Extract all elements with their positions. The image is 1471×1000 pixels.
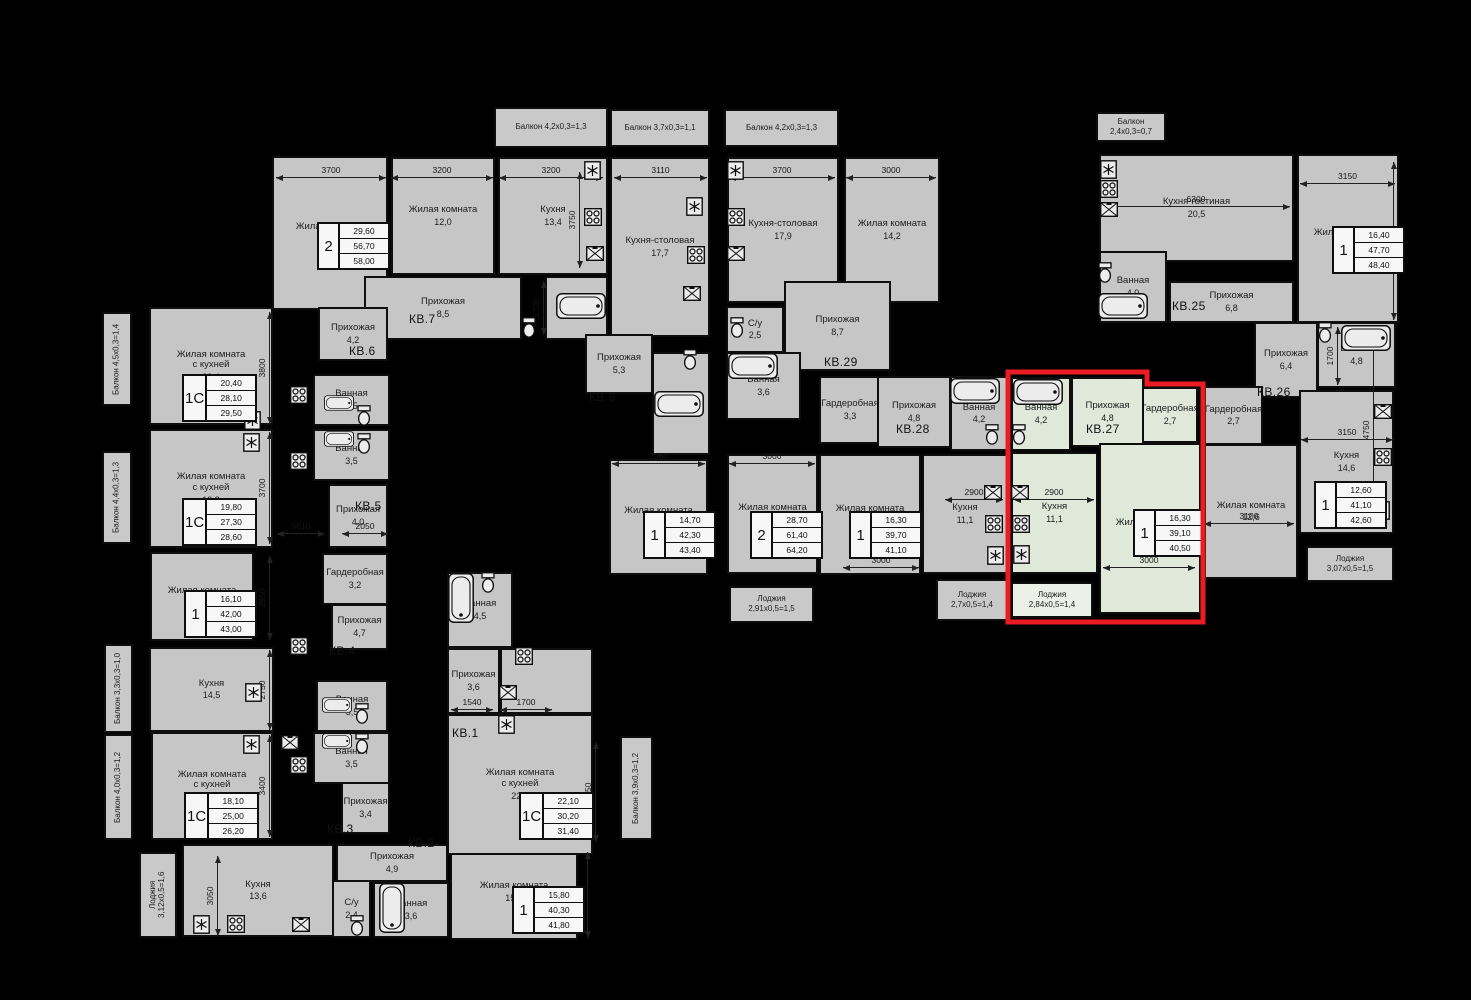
area-values: 28,7061,4064,20 (773, 513, 821, 557)
room-area: 17,7 (651, 248, 669, 258)
area-value: 28,60 (207, 529, 255, 544)
room-name: Лоджия (958, 591, 986, 600)
room-name: Прихожая (1209, 291, 1253, 302)
room-name: Гардеробная (1205, 405, 1262, 416)
balcony[interactable]: Балкон 4,4х0,3=1,3 (102, 451, 132, 544)
room-area: 4,2 (973, 414, 986, 424)
area-value: 48,40 (1355, 257, 1403, 272)
washer-icon (498, 715, 515, 734)
apartment-type-label: 1 (186, 592, 207, 636)
room-name: Кухня-столовая (626, 236, 695, 247)
loggia[interactable]: Лоджия2,7х0,5=1,4 (936, 579, 1008, 621)
room-area: 11,1 (957, 515, 974, 525)
room-area: 14,2 (883, 231, 901, 241)
floor-plan: Жилая комната17,6Жилая комната12,0Кухня1… (0, 0, 1471, 1000)
dimension-value: 2050 (354, 521, 377, 531)
apartment-label: КВ.25 (1172, 299, 1206, 313)
area-table: 116,3039,1040,50 (1133, 509, 1206, 557)
room-name: С/у (748, 319, 762, 330)
stove-icon (1374, 448, 1392, 466)
area-value: 28,70 (773, 513, 821, 527)
room-name: Прихожая (892, 401, 936, 412)
apartment-label: КВ.28 (896, 422, 930, 436)
loggia[interactable]: Лоджия2,84х0,5=1,4 (1011, 582, 1093, 618)
room-area: 3,6 (405, 911, 418, 921)
washer-icon (584, 161, 601, 180)
stove-icon (1100, 180, 1118, 198)
room-name: Прихожая (343, 797, 387, 808)
stove-icon (290, 386, 308, 404)
room-area: 6,8 (1225, 303, 1238, 313)
toilet-icon (985, 424, 999, 445)
toilet-icon (481, 572, 495, 593)
room-name: Ванная (963, 403, 996, 414)
room-area: 11,1 (1046, 514, 1063, 524)
room-area: 8,7 (831, 327, 844, 337)
area-value: 41,10 (872, 542, 920, 557)
room-area: 4,2 (1035, 415, 1048, 425)
dimension-label: 2950 (258, 556, 270, 640)
area-table: 1С18,1025,0026,20 (184, 792, 259, 840)
dimension-value: 1700 (531, 299, 541, 318)
room-area: 6,4 (1280, 361, 1293, 371)
dimension-value: 3110 (649, 165, 671, 175)
room[interactable]: Гардеробная2,7 (1142, 387, 1198, 443)
apartment-type-label: 1 (1334, 228, 1355, 272)
room-name: Жилая комната (858, 219, 927, 230)
toilet-icon (1012, 424, 1026, 445)
room-name: Прихожая (451, 670, 495, 681)
area-table: 1С22,1030,2031,40 (519, 792, 594, 840)
toilet-icon (730, 317, 744, 338)
dimension-value: 2950 (257, 589, 267, 608)
room-area: 3,2 (349, 580, 362, 590)
room-area: 2,84х0,5=1,4 (1029, 601, 1075, 610)
apartment-type-label: 1С (521, 794, 544, 838)
room-name: Прихожая (337, 616, 381, 627)
dimension-label: 3800 (258, 312, 270, 424)
dimension-value: 2900 (1043, 487, 1066, 497)
dimension-value: 2900 (963, 487, 986, 497)
area-value: 56,70 (340, 238, 388, 253)
room-name: Кухня (540, 205, 565, 216)
area-value: 20,40 (207, 376, 255, 390)
room[interactable]: Прихожая4,8 (1071, 377, 1144, 447)
dimension-label: 3000 (729, 452, 815, 464)
stove-icon (227, 915, 245, 933)
apartment-type-label: 1С (184, 376, 207, 420)
sink-icon (281, 735, 299, 750)
bathtub-icon (556, 293, 606, 319)
toilet-icon (355, 733, 369, 754)
apartment-label: КВ.29 (824, 355, 858, 369)
dimension-value: 3700 (771, 165, 794, 175)
dimension-label: 2050 (342, 522, 388, 534)
washer-icon (193, 915, 210, 934)
stove-icon (515, 647, 533, 665)
dimension-label: 3000 (1103, 556, 1195, 568)
room-area: 4,8 (1350, 356, 1363, 366)
area-table: 114,7042,3043,40 (643, 511, 716, 559)
stove-icon (687, 246, 705, 264)
dimension-value: 3800 (257, 359, 267, 378)
dimension-label: 3700 (276, 166, 386, 178)
toilet-icon (1098, 262, 1112, 283)
apartment-label: КВ.7 (409, 312, 436, 326)
room-name: Кухня (1334, 451, 1359, 462)
room-name: Прихожая (331, 323, 375, 334)
washer-icon (1013, 545, 1030, 564)
area-value: 29,60 (340, 224, 388, 238)
room-name: Кухня-столовая (749, 219, 818, 230)
sink-icon (292, 917, 310, 932)
area-value: 64,20 (773, 542, 821, 557)
room-area: 12,0 (434, 217, 452, 227)
apartment-type-label: 2 (752, 513, 773, 557)
area-value: 27,30 (207, 514, 255, 529)
room-name: Прихожая (1085, 401, 1129, 412)
room-name-line2: с кухней (193, 483, 230, 494)
bathtub-icon (1013, 379, 1063, 405)
bathtub-icon (654, 391, 704, 417)
area-table: 116,4047,7048,40 (1332, 226, 1405, 274)
dimension-label: 3150 (1300, 172, 1395, 184)
room-area: 14,6 (1338, 463, 1356, 473)
area-value: 31,40 (544, 823, 592, 838)
room-name: Кухня (952, 503, 977, 514)
area-value: 30,20 (544, 808, 592, 823)
room[interactable]: Кухня-гостиная20,5 (1099, 154, 1294, 262)
area-value: 40,30 (535, 902, 583, 917)
bathtub-icon (324, 431, 354, 447)
dimension-value: 6300 (1185, 194, 1208, 204)
area-values: 20,4028,1029,50 (207, 376, 255, 420)
washer-icon (245, 683, 262, 702)
room-area: 2,91х0,5=1,5 (748, 605, 794, 614)
area-table: 115,8040,3041,80 (512, 886, 585, 934)
room-name: Балкон 3,9х0,3=1,2 (632, 752, 641, 823)
room-name-line2: с кухней (502, 779, 539, 790)
dimension-value: 1700 (1325, 347, 1335, 366)
dimension-label: 2960 (612, 452, 705, 464)
room-area: 2,7 (1164, 416, 1177, 426)
balcony[interactable]: Балкон 4,0х0,3=1,2 (104, 734, 133, 840)
room-name: Балкон 4,2х0,3=1,3 (515, 123, 586, 132)
dimension-value: 1540 (461, 697, 484, 707)
bathtub-icon (379, 883, 405, 933)
room-area: 20,5 (1188, 209, 1206, 219)
room-name: Балкон 4,2х0,3=1,3 (746, 124, 817, 133)
dimension-value: 3150 (1336, 171, 1359, 181)
apartment-type-label: 1 (851, 513, 872, 557)
apartment-label: КВ.8 (589, 390, 616, 404)
area-values: 29,6056,7058,00 (340, 224, 388, 268)
area-value: 14,70 (666, 513, 714, 527)
room-name: Гардеробная (1142, 404, 1198, 415)
area-value: 16,30 (1156, 511, 1204, 525)
room-area: 17,9 (774, 231, 792, 241)
area-values: 16,4047,7048,40 (1355, 228, 1403, 272)
sink-icon (727, 246, 745, 261)
apartment-type-label: 1С (184, 500, 207, 544)
sink-icon (1011, 485, 1029, 500)
area-value: 43,40 (666, 542, 714, 557)
apartment-type-label: 1 (645, 513, 666, 557)
room-area: 2,7х0,5=1,4 (951, 601, 993, 610)
area-values: 16,1042,0043,00 (207, 592, 255, 636)
washer-icon (727, 161, 744, 180)
balcony[interactable]: Балкон 4,2х0,3=1,3 (724, 109, 839, 147)
apartment-type-label: 1 (1135, 511, 1156, 555)
dimension-label: 1540 (451, 698, 493, 710)
room-area: 3,6 (467, 682, 480, 692)
loggia[interactable]: Лоджия2,91х0,5=1,5 (729, 586, 814, 623)
room-area: 3,4 (359, 809, 372, 819)
room-area: 3,5 (345, 456, 358, 466)
area-value: 39,70 (872, 527, 920, 542)
dimension-label: 3150 (1301, 428, 1393, 440)
dimension-value: 3000 (880, 165, 903, 175)
area-values: 19,8027,3028,60 (207, 500, 255, 544)
room-name: Прихожая (597, 353, 641, 364)
room[interactable]: Прихожая4,8 (877, 376, 951, 448)
room[interactable]: Гардеробная3,2 (322, 553, 388, 605)
sink-icon (1374, 404, 1392, 419)
apartment-label: КВ.6 (349, 344, 376, 358)
dimension-value: 3700 (257, 479, 267, 498)
room[interactable]: Гардеробная2,7 (1204, 386, 1263, 445)
bathtub-icon (950, 378, 1000, 404)
room-name: Лоджия (757, 595, 785, 604)
room-name: Балкон 3,3х0,3=1,0 (114, 653, 123, 724)
room-area: 2,4х0,3=0,7 (1110, 128, 1152, 137)
room-name: Прихожая (370, 852, 414, 863)
washer-icon (243, 735, 260, 754)
balcony[interactable]: Балкон 4,5х0,3=1,4 (102, 312, 132, 406)
area-value: 42,60 (1337, 512, 1385, 527)
apartment-label: КВ.26 (1257, 385, 1291, 399)
room-area: 14,5 (203, 690, 221, 700)
toilet-icon (350, 915, 364, 936)
apartment-type-label: 1 (1316, 483, 1337, 527)
bathtub-icon (1341, 325, 1391, 351)
area-values: 22,1030,2031,40 (544, 794, 592, 838)
loggia[interactable]: Лоджия3,07х0,5=1,5 (1306, 546, 1394, 582)
area-value: 61,40 (773, 527, 821, 542)
area-values: 16,3039,7041,10 (872, 513, 920, 557)
dimension-value: 5610 (290, 521, 313, 531)
room-name: Балкон 3,7х0,3=1,1 (624, 124, 695, 133)
room-name: Балкон 4,5х0,3=1,4 (113, 323, 122, 394)
room-name: Балкон 4,0х0,3=1,2 (114, 751, 123, 822)
dimension-value: 3700 (320, 165, 343, 175)
area-value: 41,80 (535, 917, 583, 932)
apartment-label: КВ.4 (329, 644, 356, 658)
dimension-value: 1700 (515, 697, 538, 707)
sink-icon (586, 246, 604, 261)
room-name: Прихожая (1264, 349, 1308, 360)
area-value: 42,00 (207, 606, 255, 621)
area-value: 43,00 (207, 621, 255, 636)
stove-icon (1012, 515, 1030, 533)
room-area: 3,3 (844, 411, 857, 421)
area-table: 116,1042,0043,00 (184, 590, 257, 638)
room-area: 3,12х0,5=1,6 (158, 871, 167, 917)
bathtub-icon (1098, 293, 1148, 319)
dimension-value: 3200 (540, 165, 563, 175)
room-name: Балкон (1118, 118, 1145, 127)
area-table: 1С20,4028,1029,50 (182, 374, 257, 422)
area-value: 40,50 (1156, 540, 1204, 555)
room-name: Ванная (1117, 276, 1150, 287)
toilet-icon (357, 433, 371, 454)
room-name: Кухня (199, 679, 224, 690)
room[interactable]: Прихожая5,3 (585, 334, 653, 394)
room[interactable]: Гардеробная3,3 (819, 376, 881, 444)
room-name-line2: с кухней (194, 780, 231, 791)
dimension-label: 3750 (568, 172, 580, 268)
area-value: 15,80 (535, 888, 583, 902)
area-value: 16,30 (872, 513, 920, 527)
room-area: 4,7 (353, 628, 366, 638)
dimension-value: 4750 (1361, 421, 1371, 440)
apartment-label: КВ.3 (327, 822, 354, 836)
area-table: 229,6056,7058,00 (317, 222, 390, 270)
dimension-label: 3200 (391, 166, 493, 178)
bathtub-icon (324, 395, 354, 411)
room-area: 3,5 (345, 759, 358, 769)
dimension-value: 3200 (431, 165, 454, 175)
room-name: Жилая комната (1217, 501, 1286, 512)
stove-icon (290, 756, 308, 774)
balcony[interactable]: Балкон 3,9х0,3=1,2 (620, 736, 653, 840)
dimension-value: 3100 (1238, 511, 1261, 521)
apartment-label: КВ.5 (355, 499, 382, 513)
room-area: 13,4 (544, 217, 562, 227)
room-area: 3,6 (757, 387, 770, 397)
dimension-value: 3150 (1336, 427, 1359, 437)
area-values: 14,7042,3043,40 (666, 513, 714, 557)
washer-icon (243, 433, 260, 452)
dimension-value: 3750 (567, 211, 577, 230)
area-value: 16,10 (207, 592, 255, 606)
area-table: 1С19,8027,3028,60 (182, 498, 257, 546)
toilet-icon (683, 349, 697, 370)
dimension-label: 3110 (614, 166, 707, 178)
stove-icon (727, 208, 745, 226)
dimension-label: 3000 (846, 166, 936, 178)
room-area: 2,7 (1227, 416, 1240, 426)
room-area: 4,5 (474, 611, 487, 621)
room-name: Прихожая (421, 297, 465, 308)
area-value: 58,00 (340, 253, 388, 268)
area-value: 42,30 (666, 527, 714, 542)
area-table: 116,3039,7041,10 (849, 511, 922, 559)
room-area: 8,5 (437, 309, 450, 319)
stove-icon (985, 515, 1003, 533)
area-values: 18,1025,0026,20 (209, 794, 257, 838)
dimension-value: 2960 (647, 451, 670, 461)
loggia[interactable]: Лоджия3,12х0,5=1,6 (139, 852, 177, 938)
room-name: С/у (344, 898, 358, 909)
apartment-label: КВ.27 (1086, 422, 1120, 436)
area-table: 112,6041,1042,60 (1314, 481, 1387, 529)
stove-icon (584, 208, 602, 226)
room-name: Кухня (245, 880, 270, 891)
room-area: 3,07х0,5=1,5 (1327, 565, 1373, 574)
apartment-type-label: 2 (319, 224, 340, 268)
area-values: 15,8040,3041,80 (535, 888, 583, 932)
toilet-icon (355, 703, 369, 724)
balcony[interactable]: Балкон 3,7х0,3=1,1 (610, 109, 710, 147)
dimension-label: 5610 (277, 522, 325, 534)
dimension-value: 3000 (761, 451, 784, 461)
balcony[interactable]: Балкон 3,3х0,3=1,0 (104, 644, 133, 733)
bathtub-icon (728, 353, 778, 379)
bathtub-icon (322, 697, 352, 713)
area-value: 18,10 (209, 794, 257, 808)
area-values: 16,3039,1040,50 (1156, 511, 1204, 555)
room-name: Жилая комната (409, 205, 478, 216)
room-name: Гардеробная (821, 399, 878, 410)
toilet-icon (1318, 322, 1332, 343)
balcony[interactable]: Балкон 4,2х0,3=1,3 (494, 107, 608, 148)
area-value: 25,00 (209, 808, 257, 823)
area-value: 29,50 (207, 405, 255, 420)
apartment-label: КВ.1 (452, 726, 479, 740)
area-value: 41,10 (1337, 497, 1385, 512)
apartment-type-label: 1С (186, 794, 209, 838)
area-value: 47,70 (1355, 242, 1403, 257)
room-area: 2,5 (749, 330, 762, 340)
apartment-label: КВ.2 (408, 836, 435, 850)
area-value: 28,10 (207, 390, 255, 405)
room-name: Лоджия (1038, 591, 1066, 600)
washer-icon (686, 197, 703, 216)
area-value: 12,60 (1337, 483, 1385, 497)
toilet-icon (522, 317, 536, 338)
bathtub-icon (448, 573, 474, 623)
stove-icon (290, 452, 308, 470)
sink-icon (499, 685, 517, 700)
sink-icon (1100, 202, 1118, 217)
area-value: 16,40 (1355, 228, 1403, 242)
area-table: 228,7061,4064,20 (750, 511, 823, 559)
room-area: 4,9 (386, 864, 399, 874)
room-name: Прихожая (815, 315, 859, 326)
room-name: Гардеробная (326, 568, 383, 579)
balcony[interactable]: Балкон2,4х0,3=0,7 (1096, 112, 1166, 142)
room-name-line2: с кухней (193, 360, 230, 371)
area-value: 19,80 (207, 500, 255, 514)
stove-icon (290, 637, 308, 655)
washer-icon (987, 546, 1004, 565)
area-value: 22,10 (544, 794, 592, 808)
room-name: Лоджия (1336, 555, 1364, 564)
room-name: Балкон 4,4х0,3=1,3 (113, 462, 122, 533)
toilet-icon (357, 405, 371, 426)
washer-icon (1100, 160, 1117, 179)
room-area: 13,6 (249, 891, 267, 901)
area-value: 26,20 (209, 823, 257, 838)
bathtub-icon (322, 733, 352, 749)
dimension-label: 3100 (1204, 512, 1294, 524)
sink-icon (683, 286, 701, 301)
room-name: Кухня (1042, 502, 1067, 513)
area-value: 39,10 (1156, 525, 1204, 540)
sink-icon (984, 485, 1002, 500)
room[interactable]: Прихожая4,0 (328, 484, 388, 548)
